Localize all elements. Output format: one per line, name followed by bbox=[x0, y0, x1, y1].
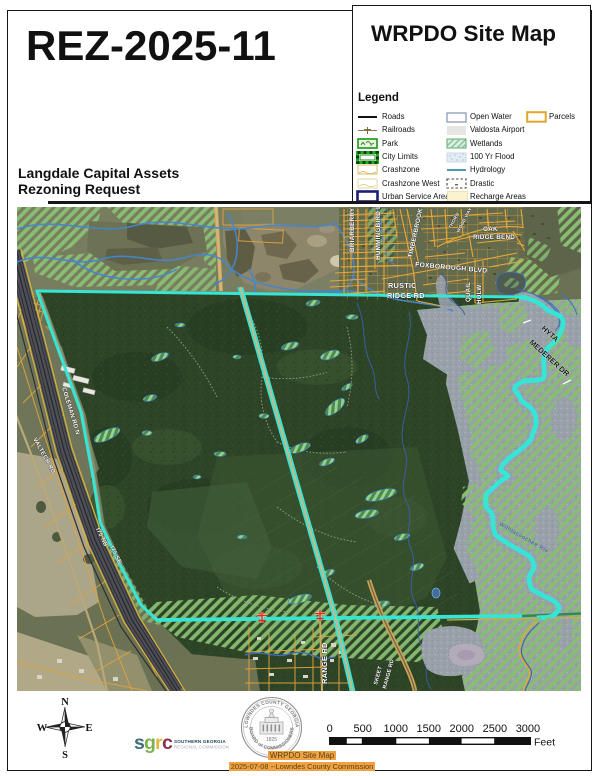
svg-text:RIDGE BEND: RIDGE BEND bbox=[473, 234, 515, 241]
svg-text:Feet: Feet bbox=[534, 737, 555, 749]
svg-text:QUAIL: QUAIL bbox=[465, 282, 472, 302]
svg-text:OAK: OAK bbox=[483, 226, 498, 233]
svg-text:RUSTIC: RUSTIC bbox=[388, 281, 417, 290]
svg-text:SOUTHERN GEORGIA: SOUTHERN GEORGIA bbox=[174, 739, 226, 744]
svg-text:N: N bbox=[61, 697, 69, 708]
svg-text:W: W bbox=[37, 723, 48, 734]
svg-text:REGIONAL COMMISSION: REGIONAL COMMISSION bbox=[174, 745, 229, 750]
svg-text:HOLW: HOLW bbox=[476, 285, 483, 304]
svg-text:RANGE RD: RANGE RD bbox=[320, 642, 329, 684]
svg-text:E: E bbox=[85, 723, 92, 734]
svg-text:HUMMINGBIRD LN: HUMMINGBIRD LN bbox=[375, 207, 382, 260]
svg-text:RIDGE RD: RIDGE RD bbox=[387, 291, 425, 300]
svg-text:BRIARBERRY DR: BRIARBERRY DR bbox=[349, 207, 356, 252]
svg-text:1825: 1825 bbox=[266, 737, 277, 743]
